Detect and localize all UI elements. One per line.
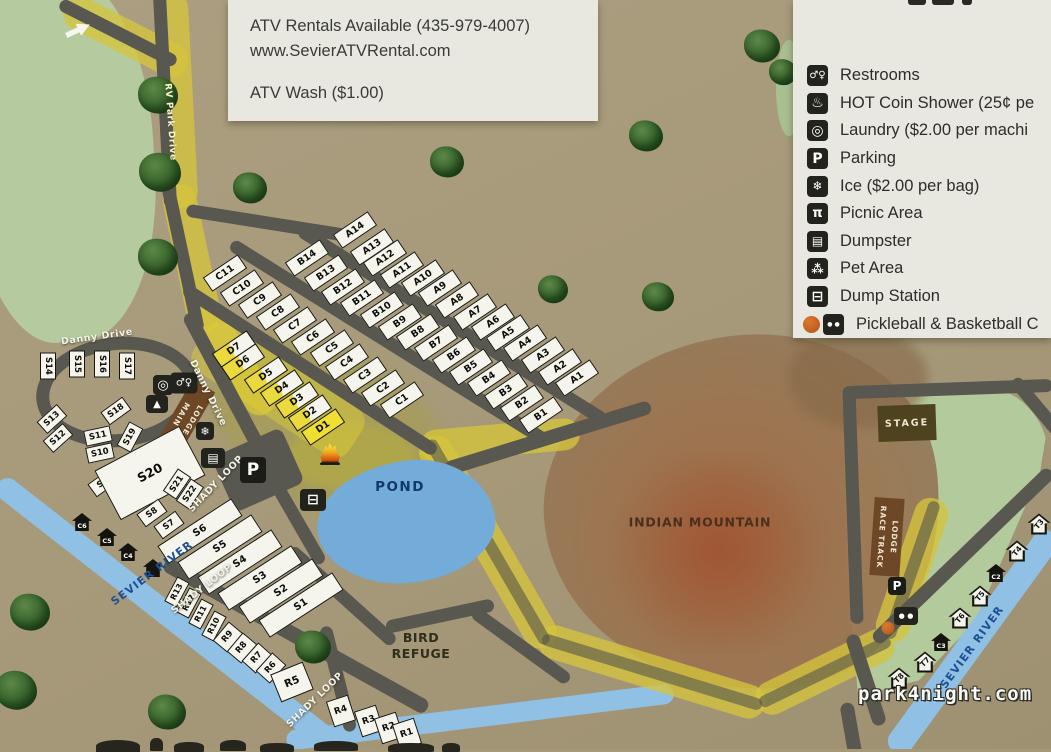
hot-coin-shower-icon: ♨ bbox=[807, 93, 828, 114]
cut-off-title-fragment bbox=[932, 0, 954, 5]
legend-item-parking: PParking bbox=[807, 145, 1051, 173]
legend-item-hot-coin-shower: ♨HOT Coin Shower (25¢ pe bbox=[807, 90, 1051, 118]
cabin-marker-c4: C4 bbox=[118, 543, 138, 561]
cut-off-title-fragment bbox=[908, 0, 926, 5]
legend-item-dumpster: ▤Dumpster bbox=[807, 228, 1051, 256]
basketball-icon bbox=[803, 316, 820, 333]
cut-off-text-fragment bbox=[220, 740, 246, 751]
tree bbox=[744, 29, 780, 62]
legend-items: ♂♀Restrooms♨HOT Coin Shower (25¢ pe◎Laun… bbox=[807, 62, 1051, 338]
parking-icon-racetrack: P bbox=[888, 577, 906, 595]
cabin-label: C4 bbox=[118, 552, 138, 560]
legend-item-label: Pet Area bbox=[840, 259, 903, 278]
legend-item-label: Parking bbox=[840, 149, 896, 168]
cut-off-text-fragment bbox=[150, 738, 163, 751]
stage-building: STAGE bbox=[877, 404, 936, 442]
site-marker-s17: S17 bbox=[119, 353, 135, 380]
tree bbox=[629, 120, 663, 151]
legend-item-restrooms: ♂♀Restrooms bbox=[807, 62, 1051, 90]
ice-icon: ❄ bbox=[807, 176, 828, 197]
cabin-label: C5 bbox=[97, 537, 117, 545]
tree bbox=[430, 146, 464, 177]
pickleball-basketball-icon: ● ● bbox=[823, 314, 844, 335]
legend-item-pet-area: ⁂Pet Area bbox=[807, 255, 1051, 283]
legend-item-laundry: ◎Laundry ($2.00 per machi bbox=[807, 117, 1051, 145]
cabin-marker-c5: C5 bbox=[97, 528, 117, 546]
legend-item-label: Dump Station bbox=[840, 287, 940, 306]
legend-item-label: Picnic Area bbox=[840, 204, 923, 223]
cut-off-text-fragment bbox=[388, 743, 434, 752]
dump-station-icon: ⊟ bbox=[300, 489, 326, 511]
legend-item-label: Ice ($2.00 per bag) bbox=[840, 177, 979, 196]
cut-off-title-fragment bbox=[962, 0, 972, 5]
restrooms-icon: ♂♀ bbox=[807, 65, 828, 86]
race-track-lodge-building: RACE TRACK LODGE bbox=[869, 497, 904, 577]
picnic-area-icon: π bbox=[807, 203, 828, 224]
tree bbox=[138, 239, 178, 276]
indian-mountain-core bbox=[598, 458, 838, 646]
site-marker-s14: S14 bbox=[40, 353, 56, 380]
basketball-icon bbox=[882, 622, 895, 635]
site-marker-s16: S16 bbox=[94, 351, 110, 378]
atv-website-line: www.SevierATVRental.com bbox=[250, 39, 598, 64]
legend-panel: ♂♀Restrooms♨HOT Coin Shower (25¢ pe◎Laun… bbox=[793, 0, 1051, 338]
dump-station-icon: ⊟ bbox=[807, 286, 828, 307]
cut-off-text-fragment bbox=[96, 740, 140, 752]
tree bbox=[148, 695, 186, 730]
tree bbox=[642, 282, 674, 311]
legend-item-label: HOT Coin Shower (25¢ pe bbox=[840, 94, 1034, 113]
cut-off-text-fragment bbox=[174, 742, 204, 752]
tree bbox=[0, 671, 37, 710]
tree bbox=[295, 630, 331, 663]
park4night-watermark: park4night.com bbox=[858, 683, 1032, 705]
map-label-bird-refuge: BIRD REFUGE bbox=[392, 630, 451, 663]
road-segment bbox=[185, 204, 350, 243]
ice-icon: ❄ bbox=[196, 422, 214, 440]
legend-item-label: Restrooms bbox=[840, 66, 920, 85]
cut-off-text-fragment bbox=[442, 743, 460, 752]
cut-off-text-fragment bbox=[260, 743, 294, 752]
laundry-icon: ◎ bbox=[807, 120, 828, 141]
parking-icon: P bbox=[807, 148, 828, 169]
legend-item-label: Pickleball & Basketball C bbox=[856, 315, 1039, 334]
map-label-pond: POND bbox=[375, 479, 425, 495]
dumpster-icon: ▤ bbox=[201, 448, 225, 468]
legend-item-label: Dumpster bbox=[840, 232, 912, 251]
legend-item-pickleball-basketball: ● ●Pickleball & Basketball C bbox=[807, 310, 1051, 338]
atv-info-panel: ATV Rentals Available (435-979-4007) www… bbox=[228, 0, 598, 121]
dumpster-icon: ▤ bbox=[807, 231, 828, 252]
cut-off-text-fragment bbox=[314, 741, 358, 751]
pet-area-icon: ⁂ bbox=[807, 258, 828, 279]
site-marker-s15: S15 bbox=[69, 351, 85, 378]
picnic-shelter-icon: ▲ bbox=[146, 395, 168, 413]
road-segment bbox=[839, 702, 862, 749]
legend-item-ice: ❄Ice ($2.00 per bag) bbox=[807, 172, 1051, 200]
tree bbox=[10, 594, 50, 631]
map-label-indian-mountain: INDIAN MOUNTAIN bbox=[629, 515, 772, 530]
pickleball-icon: ● ● bbox=[894, 607, 918, 625]
legend-item-picnic-area: πPicnic Area bbox=[807, 200, 1051, 228]
legend-item-dump-station: ⊟Dump Station bbox=[807, 283, 1051, 311]
tree bbox=[538, 275, 568, 303]
atv-rentals-line: ATV Rentals Available (435-979-4007) bbox=[250, 14, 598, 39]
legend-item-label: Laundry ($2.00 per machi bbox=[840, 121, 1028, 140]
tree bbox=[233, 172, 267, 203]
atv-wash-line: ATV Wash ($1.00) bbox=[250, 81, 598, 106]
